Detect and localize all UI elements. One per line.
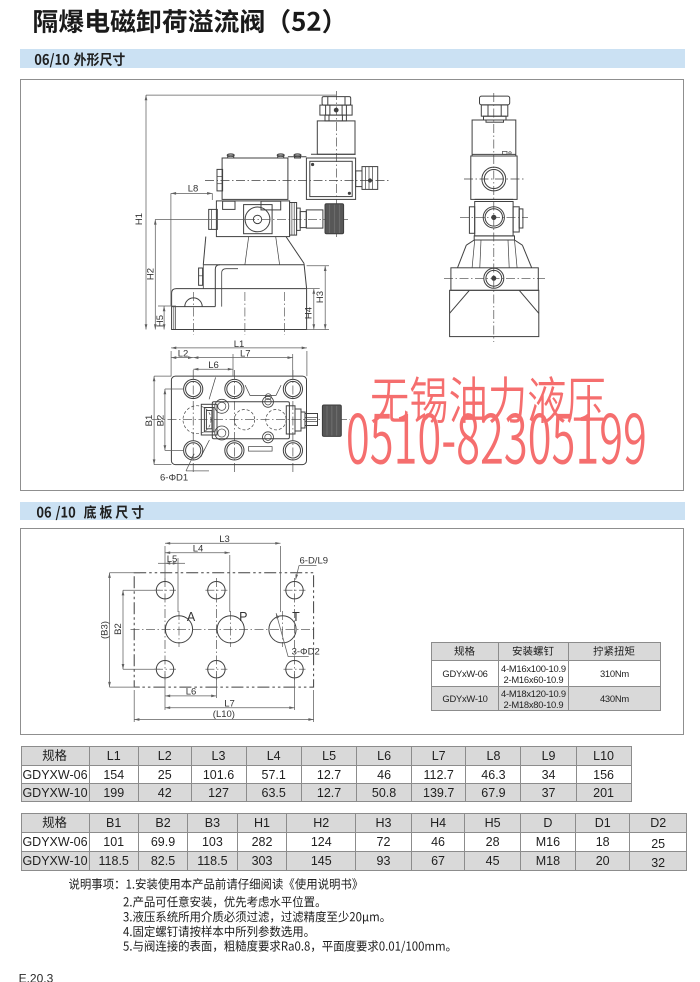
svg-text:(B3): (B3) <box>100 621 111 639</box>
svg-text:A: A <box>187 610 196 624</box>
svg-text:B2: B2 <box>156 415 167 427</box>
svg-text:E.20.3: E.20.3 <box>19 971 54 982</box>
svg-text:L8: L8 <box>188 184 199 195</box>
svg-text:P: P <box>239 610 247 624</box>
svg-text:B1: B1 <box>144 415 155 427</box>
svg-text:L7: L7 <box>240 349 251 360</box>
svg-text:H1: H1 <box>134 213 145 225</box>
svg-text:L5: L5 <box>167 554 178 565</box>
svg-text:3-ΦD2: 3-ΦD2 <box>292 646 320 657</box>
svg-text:L6: L6 <box>186 687 197 698</box>
svg-text:(L10): (L10) <box>213 709 235 720</box>
svg-text:L6: L6 <box>208 360 219 371</box>
svg-text:L3: L3 <box>219 534 230 545</box>
svg-text:L4: L4 <box>193 544 204 555</box>
svg-text:6-ΦD1: 6-ΦD1 <box>160 473 188 484</box>
svg-text:H4: H4 <box>304 307 315 319</box>
svg-text:H2: H2 <box>146 268 157 280</box>
svg-text:L2: L2 <box>178 349 189 360</box>
svg-text:H5: H5 <box>155 315 166 327</box>
svg-text:B2: B2 <box>113 623 124 635</box>
svg-text:H3: H3 <box>315 291 326 303</box>
svg-text:T: T <box>292 610 300 624</box>
svg-text:L7: L7 <box>224 699 235 710</box>
svg-text:6-D/L9: 6-D/L9 <box>300 556 329 567</box>
